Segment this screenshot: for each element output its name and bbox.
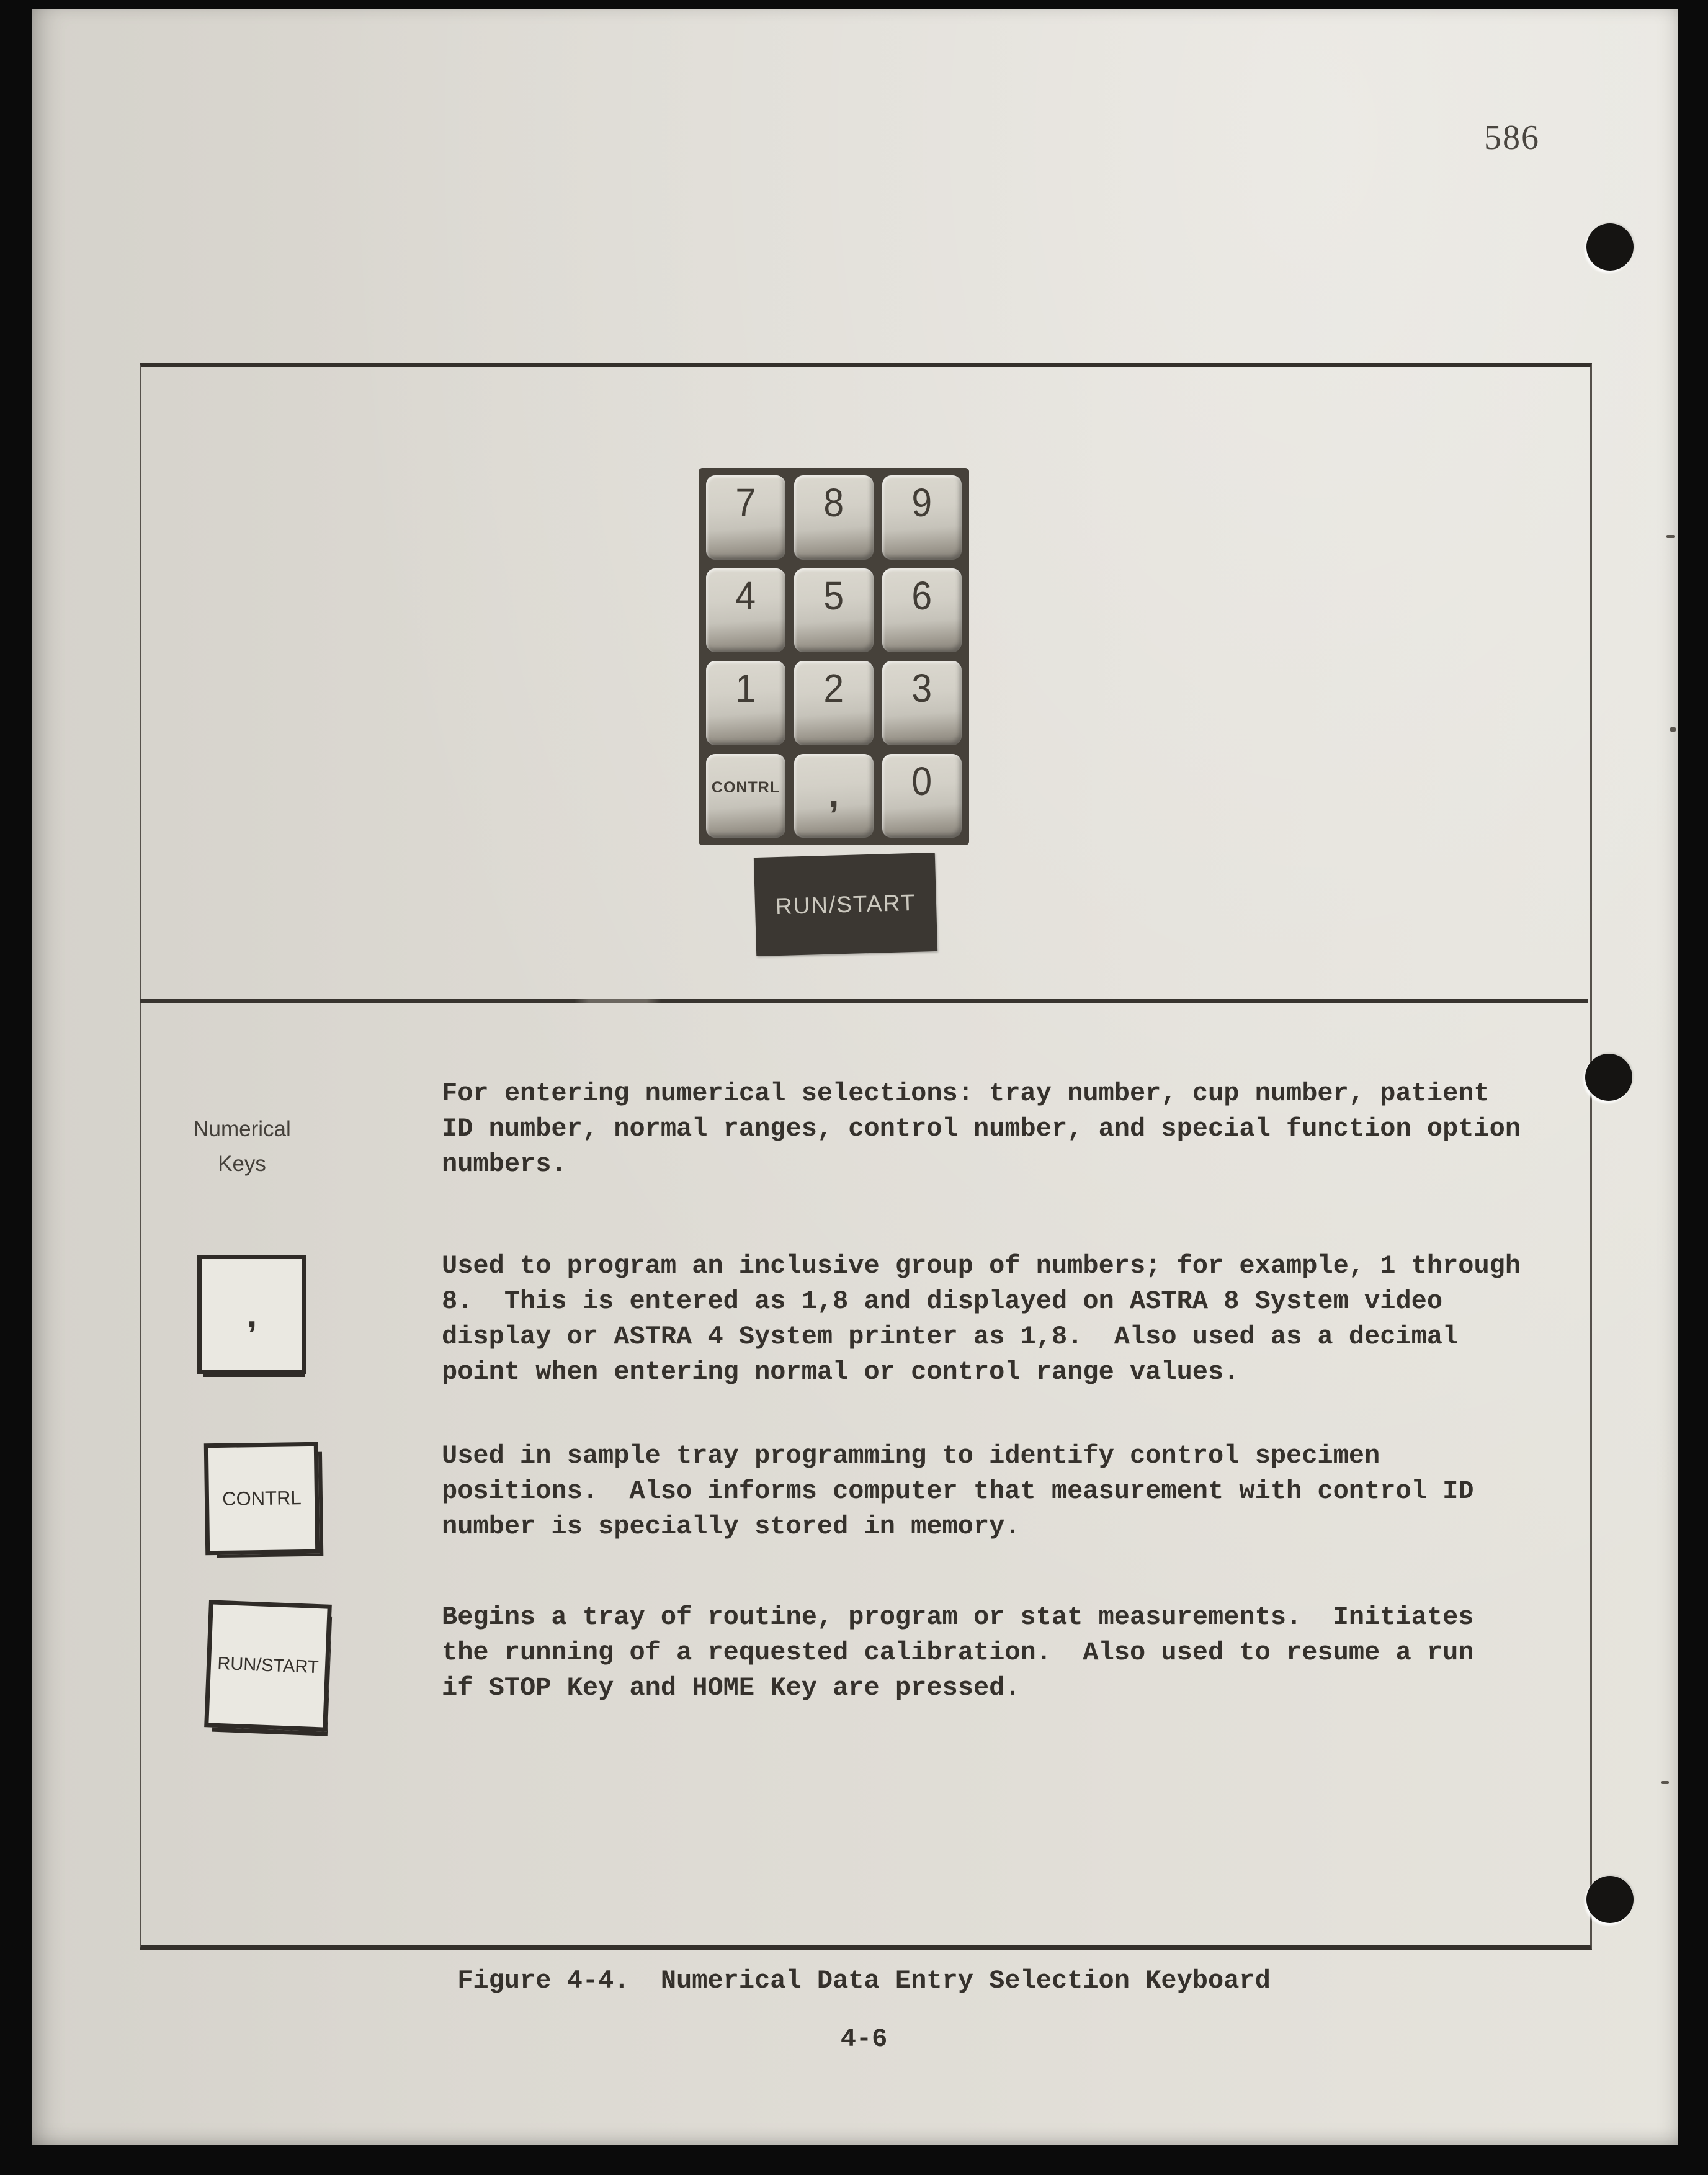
keypad-key-7: 7 bbox=[706, 475, 785, 560]
key-0-label: 0 bbox=[912, 761, 932, 801]
keypad-key-3: 3 bbox=[882, 661, 962, 745]
keypad-key-4: 4 bbox=[706, 568, 785, 653]
run-start-photo-label: RUN/START bbox=[775, 889, 916, 919]
key-7-label: 7 bbox=[736, 483, 756, 522]
comma-key-description: Used to program an inclusive group of nu… bbox=[442, 1249, 1571, 1390]
keypad-key-contrl: CONTRL bbox=[706, 754, 785, 838]
run-start-key-icon: RUN/START bbox=[204, 1600, 332, 1731]
run-start-key-description: Begins a tray of routine, program or sta… bbox=[442, 1600, 1571, 1706]
speck bbox=[1670, 727, 1676, 732]
key-comma-label: , bbox=[829, 773, 839, 815]
key-5-label: 5 bbox=[824, 576, 844, 616]
numerical-keys-description: For entering numerical selections: tray … bbox=[442, 1076, 1571, 1182]
key-contrl-label: CONTRL bbox=[712, 779, 780, 797]
hole-punch-bottom bbox=[1586, 1876, 1634, 1923]
keypad-key-6: 6 bbox=[882, 568, 962, 653]
paper: 586 7 8 9 4 5 6 1 2 3 CONTRL , 0 RUN/STA… bbox=[32, 9, 1678, 2145]
keypad-key-8: 8 bbox=[794, 475, 874, 560]
hole-punch-middle bbox=[1585, 1054, 1632, 1101]
speck bbox=[1661, 1781, 1669, 1784]
numerical-keys-label: Numerical Keys bbox=[177, 1112, 307, 1182]
key-3-label: 3 bbox=[912, 668, 932, 708]
comma-key-icon: , bbox=[197, 1255, 306, 1374]
page-number-bottom: 4-6 bbox=[140, 2024, 1588, 2054]
comma-key-icon-label: , bbox=[247, 1294, 257, 1335]
keypad-key-9: 9 bbox=[882, 475, 962, 560]
hole-punch-top bbox=[1586, 223, 1634, 271]
speck bbox=[1666, 535, 1675, 538]
key-2-label: 2 bbox=[824, 668, 844, 708]
keypad-key-0: 0 bbox=[882, 754, 962, 838]
keypad-photo: 7 8 9 4 5 6 1 2 3 CONTRL , 0 bbox=[699, 468, 969, 845]
key-8-label: 8 bbox=[824, 483, 844, 522]
figure-caption: Figure 4-4. Numerical Data Entry Selecti… bbox=[140, 1966, 1588, 1996]
contrl-key-icon-label: CONTRL bbox=[222, 1487, 302, 1510]
contrl-key-description: Used in sample tray programming to ident… bbox=[442, 1438, 1571, 1545]
run-start-key-photo: RUN/START bbox=[754, 853, 937, 956]
contrl-key-icon: CONTRL bbox=[204, 1442, 320, 1556]
run-start-key-icon-label: RUN/START bbox=[217, 1654, 319, 1678]
keypad-key-2: 2 bbox=[794, 661, 874, 745]
scanned-page: 586 7 8 9 4 5 6 1 2 3 CONTRL , 0 RUN/STA… bbox=[0, 0, 1708, 2175]
key-6-label: 6 bbox=[912, 576, 932, 616]
key-4-label: 4 bbox=[736, 576, 756, 616]
figure-divider-line bbox=[140, 999, 1588, 1003]
key-9-label: 9 bbox=[912, 483, 932, 522]
keypad-key-comma: , bbox=[794, 754, 874, 838]
key-1-label: 1 bbox=[736, 668, 756, 708]
keypad-key-5: 5 bbox=[794, 568, 874, 653]
keypad-key-1: 1 bbox=[706, 661, 785, 745]
page-number-top: 586 bbox=[1484, 118, 1540, 158]
